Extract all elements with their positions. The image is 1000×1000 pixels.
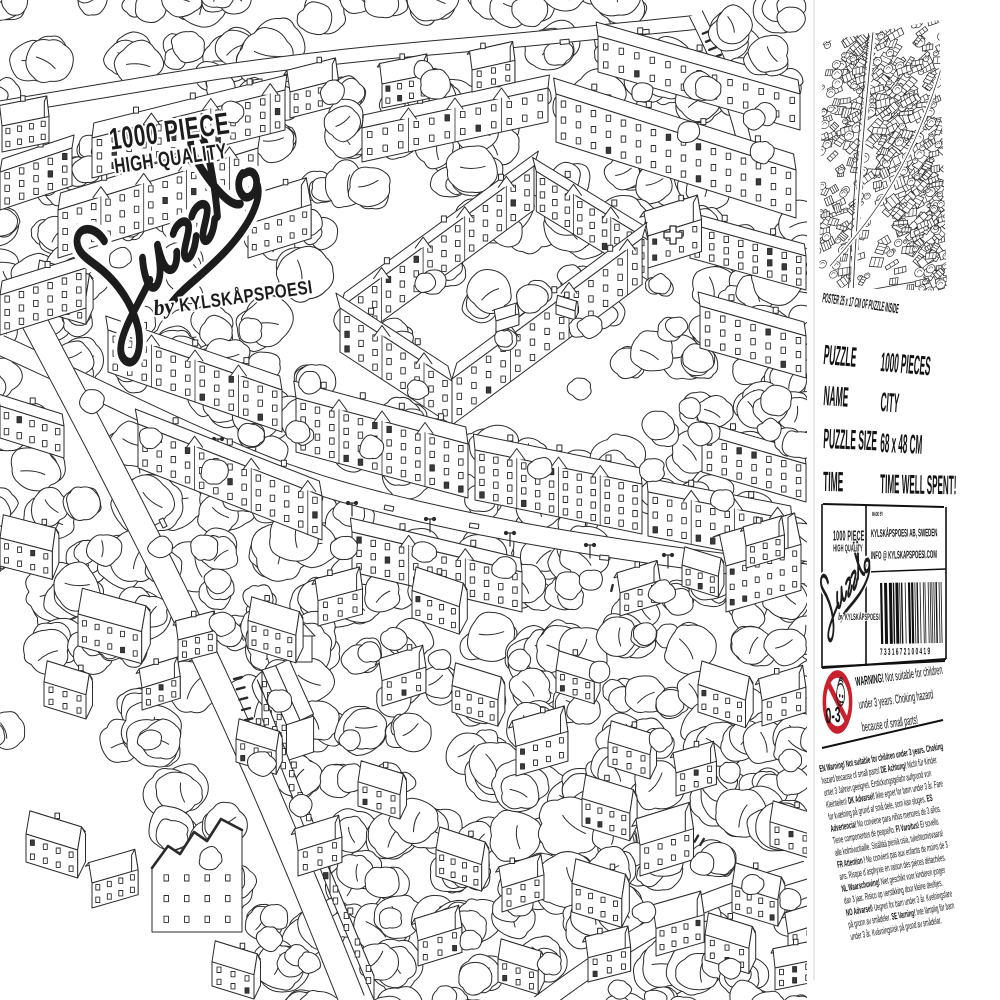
svg-text:KYLSKÅPSPOESI AB, SWEDEN: KYLSKÅPSPOESI AB, SWEDEN [871,526,938,540]
svg-text:68 x 48 CM: 68 x 48 CM [880,429,923,461]
svg-text:TIME: TIME [823,467,844,499]
svg-text:1000 PIECES: 1000 PIECES [879,348,931,382]
svg-text:PUZZLE: PUZZLE [822,340,857,374]
svg-text:CITY: CITY [880,388,900,419]
svg-text:MADE BY: MADE BY [872,511,883,518]
svg-text:NAME: NAME [823,381,850,414]
svg-text:TIME WELL SPENT!: TIME WELL SPENT! [880,470,957,501]
svg-text:PUZZLE SIZE: PUZZLE SIZE [823,424,878,457]
svg-text:0-3: 0-3 [825,701,841,728]
svg-text:7 3 3 1 6 7 2 1 0 0 4 1 9: 7 3 3 1 6 7 2 1 0 0 4 1 9 [880,645,930,657]
svg-text:INFO @ KYLSKAPSPOESI.COM: INFO @ KYLSKAPSPOESI.COM [871,547,937,561]
